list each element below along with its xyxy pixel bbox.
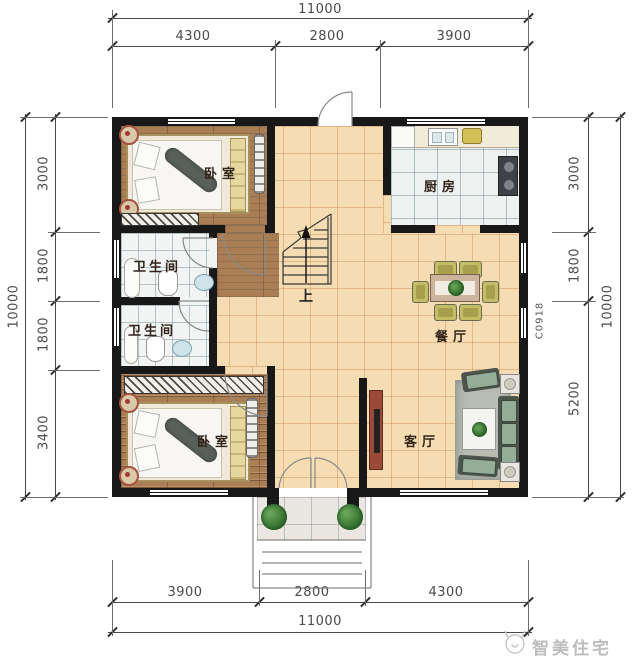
nightstand [119, 466, 139, 486]
extension-line [532, 497, 624, 498]
sofa-single [457, 455, 498, 478]
dim-line-top-segments [112, 46, 528, 47]
dim-left-total: 10000 [7, 277, 22, 337]
window-dining-upper [519, 243, 528, 273]
porch-plant [337, 504, 363, 530]
wall-segment [267, 366, 275, 374]
basin [194, 274, 214, 291]
toilet [146, 336, 165, 362]
dim-left-seg-4: 3400 [37, 403, 52, 463]
basin [172, 340, 192, 357]
dim-bottom-seg-1: 3900 [150, 585, 220, 600]
extension-line [365, 570, 366, 606]
dim-line-left-segments [55, 114, 56, 500]
dining-chair [482, 281, 499, 303]
bathroom-lower-door-opening [180, 297, 209, 305]
bedroom-bottom-door-opening [225, 366, 267, 374]
basket [462, 128, 482, 144]
extension-line [20, 117, 108, 118]
dim-bottom-seg-3: 4300 [411, 585, 481, 600]
kitchen-sink [428, 128, 458, 146]
dim-right-seg-1: 3000 [568, 144, 583, 204]
extension-line [112, 560, 113, 636]
dim-line-bottom-segments [112, 602, 528, 603]
kitchen-dining-opening [435, 225, 480, 233]
tv-cabinet [369, 390, 383, 470]
wall-segment [265, 225, 275, 233]
back-door-opening [318, 117, 352, 126]
dim-line-right-total [620, 114, 621, 500]
wall-outer-right [519, 117, 528, 497]
watermark-logo-icon [505, 631, 525, 653]
wall-kitchen-bottom-right [480, 225, 519, 233]
kitchen-hall-opening [383, 195, 391, 233]
dining-chair [412, 281, 429, 303]
dim-top-total: 11000 [280, 2, 360, 17]
watermark-brand: 智美住宅 [532, 634, 612, 659]
wall-bedroom-top-bottom [121, 225, 225, 233]
dining-chair [459, 304, 482, 321]
room-label-kitchen: 厨房 [392, 176, 492, 195]
porch-plant [261, 504, 287, 530]
wall-bedroom-bottom-right [267, 374, 275, 488]
wall-bathroom-divider [121, 297, 180, 305]
window-code-label: C0918 [535, 291, 546, 351]
floor-plan-canvas: 11000 4300 2800 3900 3900 2800 4300 1100… [0, 0, 640, 668]
dim-line-right-segments [588, 114, 589, 500]
corridor-floor [217, 233, 279, 297]
dining-chair [434, 304, 457, 321]
dim-top-seg-2: 2800 [292, 29, 362, 44]
extension-line [528, 560, 529, 636]
table-plant [472, 422, 487, 437]
wall-bedroom-bottom-top [121, 366, 225, 374]
extension-line [528, 10, 529, 108]
window-kitchen [407, 117, 485, 126]
nightstand [119, 125, 139, 145]
wall-living-left [359, 378, 367, 488]
cooktop [498, 156, 518, 196]
wall-kitchen-left [383, 126, 391, 195]
extension-line [552, 301, 596, 302]
dim-right-seg-3: 5200 [568, 369, 583, 429]
stairs-up-label: 上 [291, 286, 321, 306]
table-centerpiece [448, 280, 464, 296]
dim-left-seg-1: 3000 [37, 144, 52, 204]
extension-line [48, 232, 100, 233]
bathroom-upper-door-opening [209, 238, 217, 268]
window-bedroom-bottom [150, 488, 228, 497]
dim-top-seg-3: 3900 [419, 29, 489, 44]
dim-top-seg-1: 4300 [158, 29, 228, 44]
extension-line [48, 301, 100, 302]
extension-line [48, 370, 100, 371]
dim-line-bottom-total [108, 632, 532, 633]
bedroom-top-door-opening [225, 225, 265, 233]
extension-line [20, 497, 108, 498]
dim-left-seg-2: 1800 [37, 236, 52, 296]
room-label-bathroom-lower: 卫生间 [102, 320, 202, 339]
room-label-bedroom-bottom: 卧室 [165, 431, 265, 450]
extension-line [259, 570, 260, 606]
window-living [400, 488, 488, 497]
side-table [500, 462, 520, 482]
dining-table [430, 274, 480, 302]
side-table [500, 374, 520, 394]
room-label-bedroom-top: 卧室 [172, 163, 272, 182]
extension-line [532, 117, 624, 118]
room-label-living: 客厅 [372, 431, 472, 450]
entry-door-opening [279, 488, 347, 497]
wall-bathroom-lower-right [209, 305, 217, 366]
extension-line [275, 40, 276, 108]
dim-line-top-total [108, 18, 532, 19]
sofa-main [498, 396, 519, 470]
extension-line [552, 232, 596, 233]
wardrobe [124, 376, 264, 394]
dim-bottom-total: 11000 [285, 614, 355, 629]
dim-bottom-seg-2: 2800 [277, 585, 347, 600]
dim-line-left-total [25, 114, 26, 500]
dim-right-total: 10000 [601, 277, 616, 337]
extension-line [380, 40, 381, 108]
dim-left-seg-3: 1800 [37, 305, 52, 365]
room-label-dining: 餐厅 [403, 326, 503, 345]
extension-line [112, 10, 113, 108]
dresser [121, 213, 199, 226]
window-bedroom-top [168, 117, 235, 126]
wall-outer-left [112, 117, 121, 497]
room-label-bathroom-upper: 卫生间 [107, 256, 207, 275]
wall-segment [209, 297, 217, 305]
dim-right-seg-2: 1800 [568, 236, 583, 296]
nightstand [119, 393, 139, 413]
window-dining-c0918 [519, 308, 528, 338]
fridge [391, 126, 415, 148]
